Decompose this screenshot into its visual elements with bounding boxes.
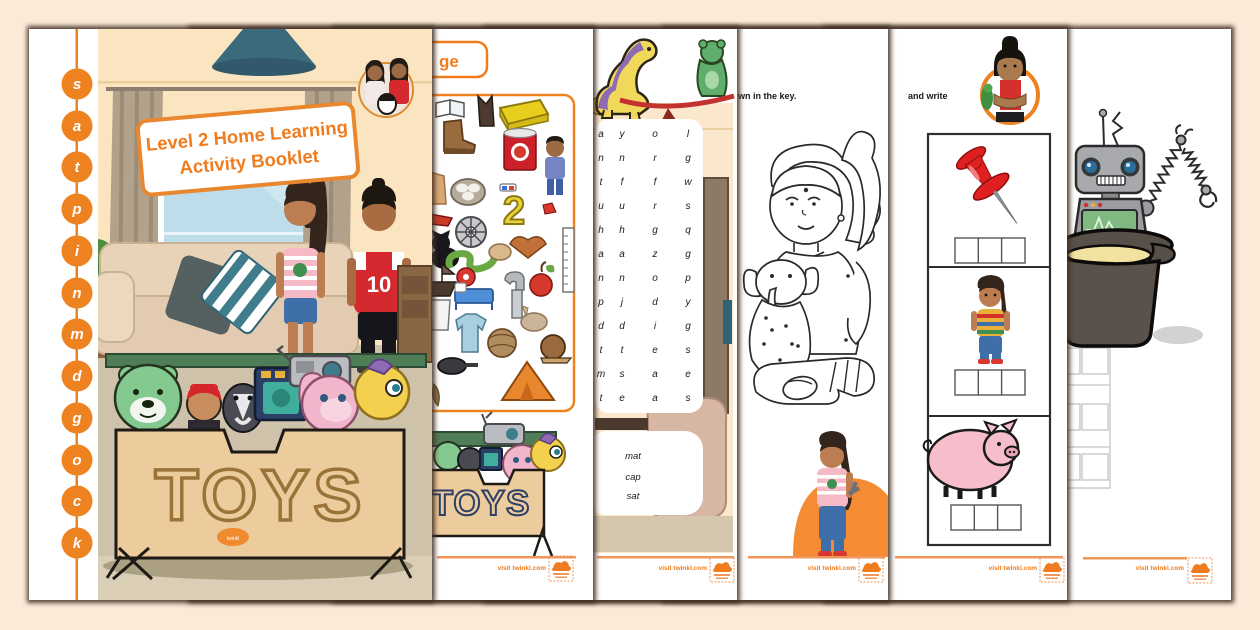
svg-text:and write: and write — [908, 91, 948, 101]
svg-text:n: n — [598, 153, 604, 164]
svg-text:g: g — [685, 249, 691, 260]
svg-text:k: k — [73, 535, 82, 552]
svg-text:o: o — [72, 452, 81, 469]
svg-text:u: u — [598, 201, 604, 212]
svg-text:n: n — [72, 285, 81, 302]
svg-text:y: y — [619, 129, 626, 140]
svg-text:visit twinkl.com: visit twinkl.com — [498, 565, 547, 572]
svg-text:n: n — [619, 153, 625, 164]
svg-text:n: n — [598, 273, 604, 284]
svg-text:a: a — [73, 118, 81, 135]
svg-text:z: z — [652, 249, 658, 260]
svg-text:visit twinkl.com: visit twinkl.com — [1136, 565, 1185, 572]
svg-text:e: e — [685, 369, 691, 380]
svg-text:a: a — [598, 249, 604, 260]
svg-text:10: 10 — [367, 272, 391, 297]
svg-text:g: g — [685, 153, 691, 164]
svg-text:q: q — [685, 225, 691, 236]
svg-text:o: o — [652, 273, 658, 284]
svg-text:u: u — [619, 201, 625, 212]
svg-text:visit twinkl.com: visit twinkl.com — [808, 565, 857, 572]
svg-text:twinkl: twinkl — [227, 536, 240, 542]
svg-text:cap: cap — [625, 472, 640, 483]
svg-text:2: 2 — [503, 189, 525, 233]
svg-text:h: h — [619, 225, 625, 236]
svg-text:w: w — [684, 177, 692, 188]
svg-text:s: s — [73, 76, 81, 93]
svg-text:visit twinkl.com: visit twinkl.com — [989, 565, 1038, 572]
svg-text:h: h — [598, 225, 604, 236]
svg-text:sat: sat — [627, 491, 640, 502]
svg-text:a: a — [598, 129, 604, 140]
svg-text:visit twinkl.com: visit twinkl.com — [659, 565, 708, 572]
svg-text:d: d — [598, 321, 604, 332]
svg-text:c: c — [73, 493, 82, 510]
svg-text:s: s — [686, 345, 691, 356]
svg-text:ge: ge — [439, 52, 459, 71]
svg-text:p: p — [684, 273, 691, 284]
svg-text:n: n — [619, 273, 625, 284]
svg-text:a: a — [652, 393, 658, 404]
svg-text:g: g — [652, 225, 658, 236]
svg-text:s: s — [686, 393, 691, 404]
svg-text:s: s — [686, 201, 691, 212]
svg-text:mat: mat — [625, 451, 641, 462]
svg-text:TOYS: TOYS — [155, 456, 366, 536]
svg-text:y: y — [685, 297, 692, 308]
svg-text:o: o — [652, 129, 658, 140]
svg-text:s: s — [620, 369, 625, 380]
svg-text:e: e — [619, 393, 625, 404]
svg-text:m: m — [70, 326, 83, 343]
svg-text:d: d — [652, 297, 658, 308]
svg-text:e: e — [652, 345, 658, 356]
svg-text:g: g — [685, 321, 691, 332]
svg-text:a: a — [652, 369, 658, 380]
svg-text:a: a — [619, 249, 625, 260]
svg-text:p: p — [71, 201, 81, 218]
svg-text:d: d — [72, 368, 82, 385]
svg-text:wn in the key.: wn in the key. — [737, 91, 796, 101]
svg-text:m: m — [597, 369, 605, 380]
svg-text:p: p — [597, 297, 604, 308]
svg-text:g: g — [71, 410, 81, 427]
svg-text:TOYS: TOYS — [432, 484, 531, 523]
svg-text:d: d — [619, 321, 625, 332]
